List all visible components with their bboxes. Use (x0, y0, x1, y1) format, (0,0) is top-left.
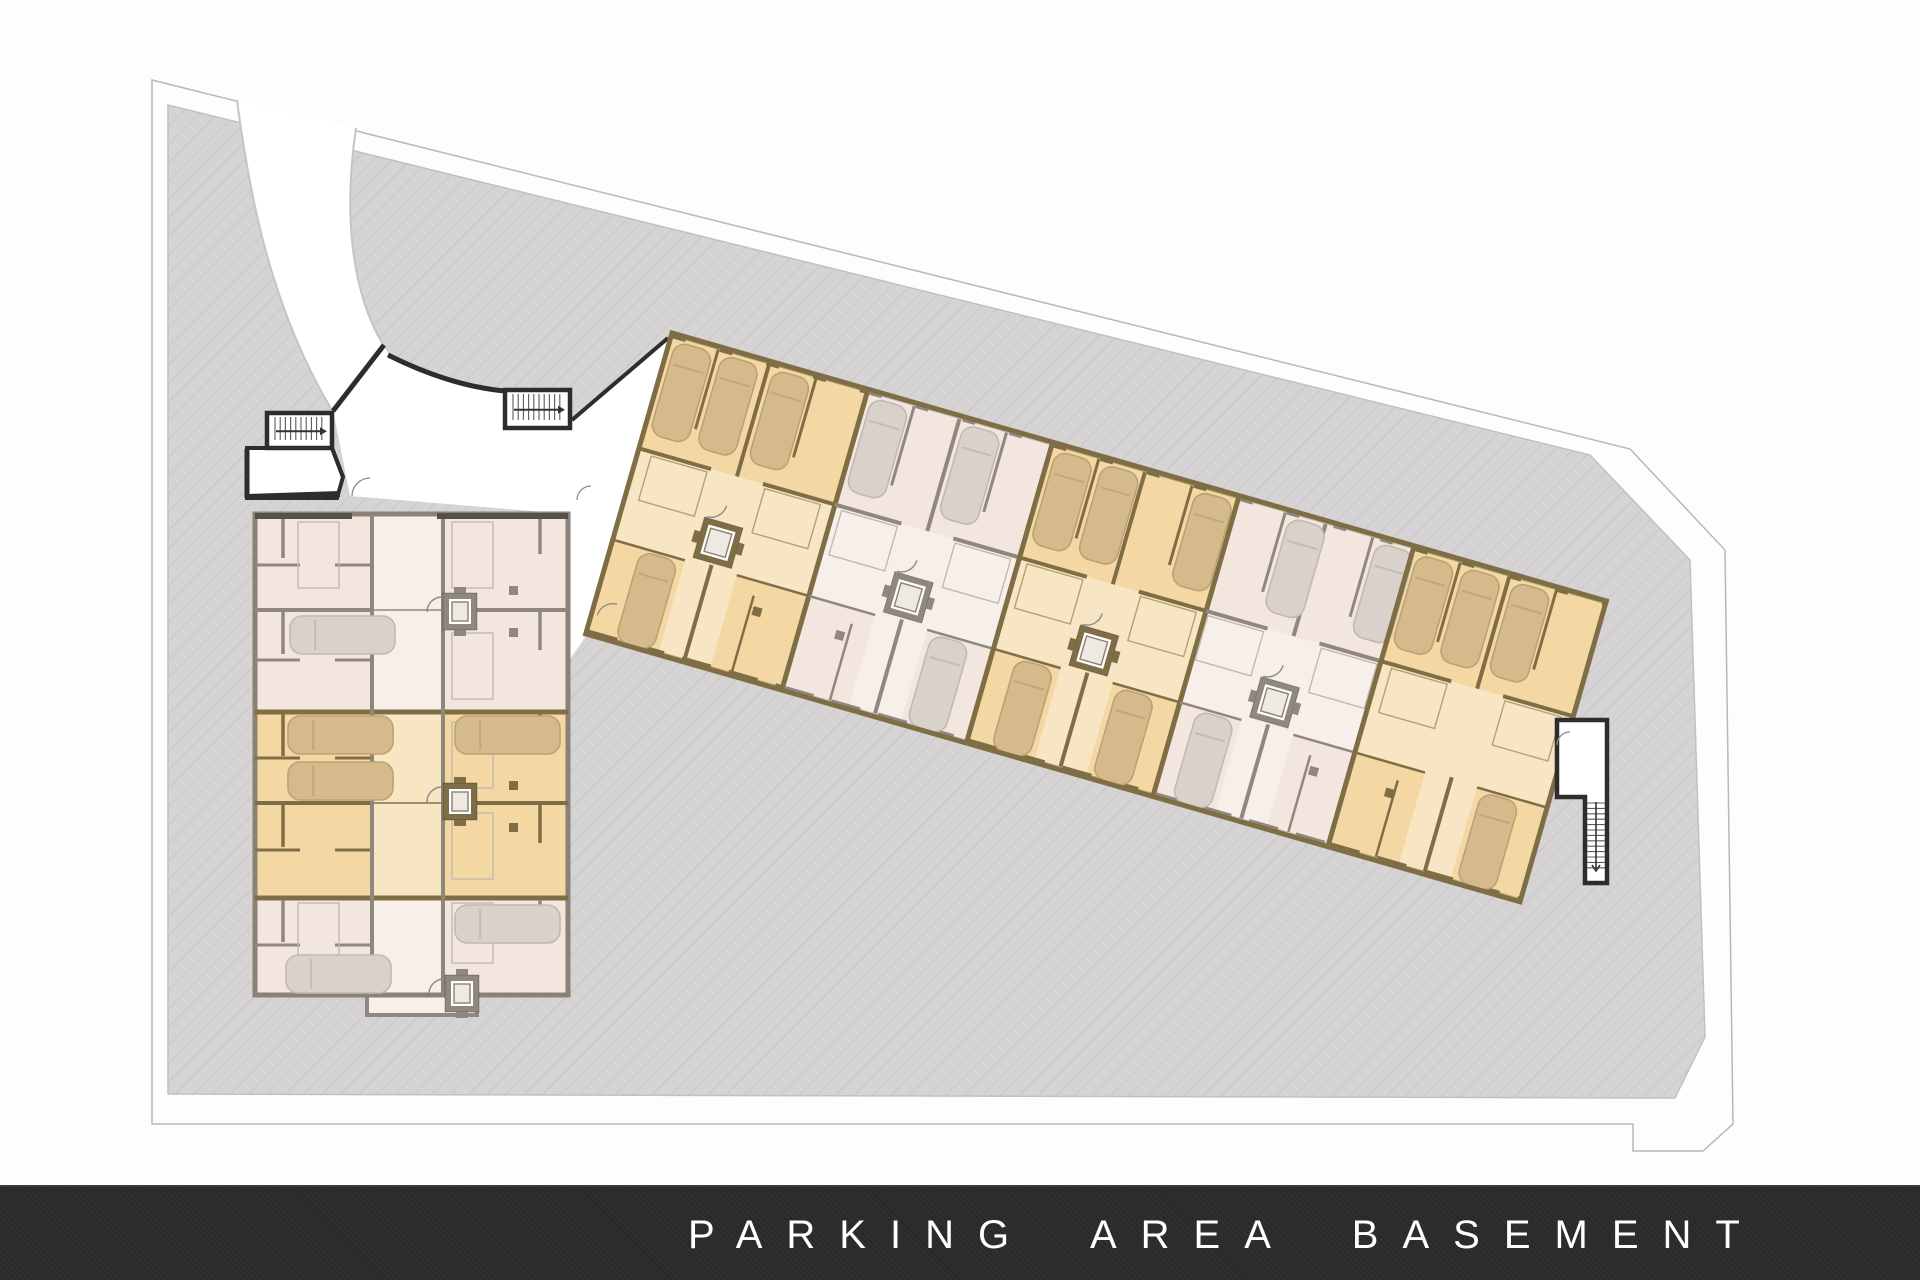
footer-bar: PARKING AREA BASEMENT (0, 1185, 1920, 1280)
car-icon (290, 616, 395, 654)
car-icon (455, 716, 560, 754)
stair-icon-west (267, 413, 332, 448)
stair-icon-mid (505, 390, 570, 428)
floor-plan-canvas (0, 0, 1920, 1280)
footer-title: PARKING AREA BASEMENT (688, 1213, 1764, 1258)
car-icon (288, 762, 393, 800)
car-icon (455, 905, 560, 943)
car-icon (286, 955, 391, 993)
car-icon (288, 716, 393, 754)
floor-plan-page: PARKING AREA BASEMENT (0, 0, 1920, 1280)
left-building (255, 514, 568, 1018)
